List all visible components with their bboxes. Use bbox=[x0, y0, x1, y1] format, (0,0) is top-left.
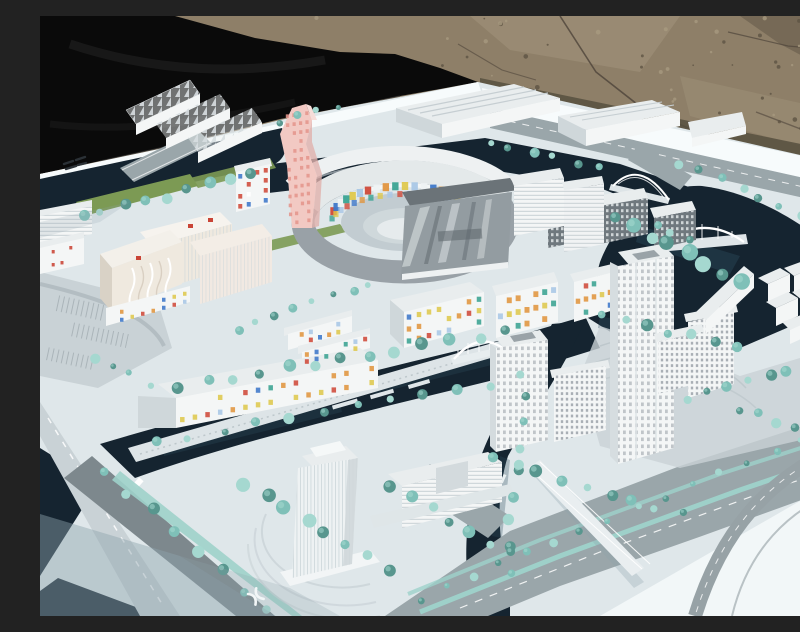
facade-dot bbox=[427, 333, 432, 338]
tree bbox=[695, 256, 711, 272]
mosaic-tile bbox=[357, 189, 363, 197]
tree-highlight bbox=[665, 331, 669, 335]
tree bbox=[650, 505, 657, 512]
tree-highlight bbox=[628, 220, 635, 227]
gravel-speckle bbox=[641, 54, 644, 57]
facade-dot bbox=[243, 405, 248, 410]
tree bbox=[121, 490, 130, 499]
tree bbox=[715, 468, 722, 475]
tree-highlight bbox=[351, 288, 355, 292]
facade-dot bbox=[498, 313, 503, 319]
tree bbox=[514, 460, 524, 470]
tree-highlight bbox=[599, 312, 602, 315]
facade-dot bbox=[592, 294, 597, 299]
tree bbox=[184, 435, 191, 442]
checker-building bbox=[234, 158, 272, 212]
tree bbox=[252, 319, 258, 325]
facade-dot bbox=[238, 204, 242, 209]
facade-dot bbox=[309, 338, 313, 343]
tree-highlight bbox=[150, 504, 155, 509]
facade-dot bbox=[256, 402, 261, 407]
tree-highlight bbox=[356, 402, 359, 405]
tree-highlight bbox=[464, 527, 470, 533]
facade-dot bbox=[218, 395, 223, 400]
gravel-speckle bbox=[692, 64, 694, 66]
tree-highlight bbox=[611, 213, 616, 218]
tree bbox=[584, 484, 592, 492]
tree-highlight bbox=[444, 334, 450, 340]
facade-dot bbox=[247, 182, 251, 187]
facade-dot bbox=[162, 306, 166, 310]
mosaic-tile bbox=[349, 192, 355, 200]
gravel-speckle bbox=[446, 37, 449, 40]
facade-dot bbox=[231, 407, 236, 412]
gravel-speckle bbox=[793, 117, 798, 122]
facade-dot bbox=[264, 178, 268, 183]
tree bbox=[674, 160, 683, 169]
mosaic-tile bbox=[387, 192, 392, 198]
gravel-speckle bbox=[718, 111, 721, 114]
facade-dot bbox=[264, 198, 268, 203]
tree-highlight bbox=[687, 237, 690, 240]
facade-dot bbox=[131, 315, 135, 319]
tree bbox=[516, 371, 524, 379]
facade-dot bbox=[294, 395, 299, 400]
tree-highlight bbox=[256, 371, 260, 375]
facade-dot bbox=[301, 193, 304, 197]
gravel-speckle bbox=[731, 64, 733, 66]
tree-highlight bbox=[723, 383, 728, 388]
gravel-speckle bbox=[666, 67, 670, 71]
facade-dot bbox=[247, 192, 251, 197]
facade-dot bbox=[307, 218, 310, 222]
facade-dot bbox=[300, 332, 304, 337]
tree-highlight bbox=[745, 461, 748, 464]
tree-highlight bbox=[418, 390, 423, 395]
tree-highlight bbox=[737, 408, 740, 411]
tree-highlight bbox=[663, 496, 666, 499]
facade-dot bbox=[576, 299, 581, 304]
facade-dot bbox=[542, 316, 547, 322]
facade-dot bbox=[307, 201, 310, 205]
facade-dot bbox=[120, 318, 124, 322]
tree-highlight bbox=[236, 327, 240, 331]
tree-highlight bbox=[342, 541, 346, 545]
tree bbox=[236, 478, 250, 492]
tree-highlight bbox=[681, 510, 684, 513]
tree bbox=[310, 361, 320, 371]
gravel-speckle bbox=[763, 16, 767, 20]
tree bbox=[90, 354, 100, 364]
gravel-speckle bbox=[694, 20, 697, 23]
tree-highlight bbox=[336, 354, 341, 359]
gravel-speckle bbox=[523, 54, 528, 59]
facade-dot bbox=[592, 281, 597, 286]
tree bbox=[486, 541, 494, 549]
tree-highlight bbox=[509, 570, 512, 573]
facade-dot bbox=[467, 311, 472, 316]
tree-highlight bbox=[453, 385, 458, 390]
facade-dot bbox=[407, 338, 412, 343]
tree-highlight bbox=[597, 164, 600, 167]
mosaic-tile bbox=[338, 207, 343, 213]
tree-highlight bbox=[718, 270, 723, 275]
facade-dot bbox=[288, 195, 291, 199]
gravel-speckle bbox=[547, 44, 549, 46]
tree-highlight bbox=[126, 370, 129, 373]
tree-highlight bbox=[655, 222, 658, 225]
gravel-speckle bbox=[484, 39, 488, 43]
facade-dot bbox=[264, 168, 268, 173]
facade-dot bbox=[533, 305, 538, 311]
tree-highlight bbox=[366, 353, 371, 358]
tree-highlight bbox=[605, 519, 608, 522]
tree-highlight bbox=[264, 490, 270, 496]
facade-dot bbox=[294, 185, 297, 189]
facade-dot bbox=[152, 309, 156, 313]
facade-dot bbox=[294, 158, 297, 162]
gravel-speckle bbox=[673, 97, 676, 100]
tree-highlight bbox=[733, 343, 738, 348]
tree bbox=[503, 514, 514, 525]
facade-dot bbox=[516, 309, 521, 315]
tree bbox=[363, 550, 373, 560]
gravel-speckle bbox=[314, 16, 318, 20]
tree-highlight bbox=[719, 174, 723, 178]
facade-dot bbox=[307, 192, 310, 196]
tree bbox=[740, 185, 748, 193]
facade-dot bbox=[293, 122, 296, 126]
facade-dot bbox=[407, 314, 412, 319]
gravel-speckle bbox=[777, 65, 781, 69]
mosaic-tile bbox=[343, 195, 349, 203]
tree-highlight bbox=[101, 468, 105, 472]
facade-dot bbox=[318, 335, 322, 340]
tree-highlight bbox=[496, 560, 499, 563]
tree bbox=[365, 282, 371, 288]
gravel-speckle bbox=[466, 56, 469, 59]
tree-highlight bbox=[736, 275, 743, 282]
gravel-speckle bbox=[714, 30, 718, 34]
tree-highlight bbox=[331, 292, 334, 295]
tree-highlight bbox=[691, 482, 694, 485]
gravel-speckle bbox=[671, 100, 674, 103]
facade-dot bbox=[300, 148, 303, 152]
tree-highlight bbox=[289, 305, 293, 309]
facade-dot bbox=[600, 292, 605, 297]
tree bbox=[162, 193, 173, 204]
tree-highlight bbox=[223, 429, 226, 432]
facade-dot bbox=[324, 354, 328, 359]
gravel-speckle bbox=[791, 64, 793, 66]
mosaic-tile bbox=[352, 200, 357, 206]
facade-dot bbox=[305, 359, 309, 364]
mosaic-tile bbox=[360, 197, 365, 203]
mosaic-tile bbox=[365, 187, 371, 195]
gravel-speckle bbox=[761, 97, 764, 100]
facade-dot bbox=[507, 297, 512, 303]
facade-dot bbox=[238, 174, 242, 179]
tree bbox=[622, 316, 630, 324]
facade-dot bbox=[417, 312, 422, 317]
facade-dot bbox=[288, 168, 291, 172]
facade-dot bbox=[507, 311, 512, 317]
facade-dot bbox=[299, 130, 302, 134]
tree bbox=[192, 546, 204, 558]
facade-dot bbox=[332, 387, 337, 392]
facade-dot bbox=[437, 330, 442, 335]
facade-dot bbox=[264, 188, 268, 193]
facade-dot bbox=[205, 412, 210, 417]
facade-dot bbox=[363, 337, 367, 342]
facade-dot bbox=[332, 373, 337, 378]
facade-dot bbox=[162, 298, 166, 302]
tree-highlight bbox=[271, 313, 275, 317]
mosaic-tile bbox=[392, 182, 398, 190]
tree-highlight bbox=[111, 364, 114, 367]
tree-highlight bbox=[170, 527, 175, 532]
facade-dot bbox=[268, 400, 273, 405]
facade-dot bbox=[584, 310, 589, 315]
facade-dot bbox=[369, 380, 374, 385]
tree-highlight bbox=[531, 466, 537, 472]
gravel-speckle bbox=[772, 114, 775, 117]
facade-dot bbox=[294, 380, 299, 385]
facade-dot bbox=[52, 263, 55, 266]
facade-dot bbox=[299, 121, 302, 125]
facade-dot bbox=[542, 289, 547, 295]
tree-highlight bbox=[319, 528, 324, 533]
mosaic-tile bbox=[378, 193, 383, 199]
tree-highlight bbox=[142, 197, 146, 201]
tree-highlight bbox=[285, 361, 291, 367]
facade-dot bbox=[369, 366, 374, 371]
tree-highlight bbox=[507, 548, 511, 552]
gravel-speckle bbox=[441, 64, 444, 67]
tree-highlight bbox=[712, 338, 717, 343]
facade-dot bbox=[477, 319, 482, 324]
facade-dot bbox=[183, 292, 187, 296]
tree bbox=[228, 375, 238, 385]
tree bbox=[549, 539, 558, 548]
mosaic-tile bbox=[333, 211, 338, 217]
facade-dot bbox=[315, 350, 319, 355]
tree-highlight bbox=[704, 389, 707, 392]
facade-dot bbox=[295, 194, 298, 198]
photo-architectural-model bbox=[40, 16, 800, 616]
tree-highlight bbox=[755, 195, 759, 199]
tree-highlight bbox=[173, 383, 178, 388]
facade-dot bbox=[183, 300, 187, 304]
facade-dot bbox=[457, 313, 462, 318]
tree-highlight bbox=[385, 566, 390, 571]
tree bbox=[488, 140, 494, 146]
facade-dot bbox=[309, 330, 313, 335]
tree-highlight bbox=[776, 204, 779, 207]
gravel-speckle bbox=[778, 120, 781, 123]
tree-highlight bbox=[627, 496, 632, 501]
facade-dot bbox=[293, 131, 296, 135]
mosaic-tile bbox=[383, 183, 389, 191]
gravel-speckle bbox=[491, 75, 493, 77]
facade-dot bbox=[180, 417, 185, 422]
tree-highlight bbox=[321, 409, 325, 413]
tree-highlight bbox=[695, 166, 699, 170]
tree bbox=[515, 445, 524, 454]
facade-dot bbox=[295, 212, 298, 216]
facade-dot bbox=[525, 307, 530, 313]
tree-highlight bbox=[446, 519, 450, 523]
tree-highlight bbox=[252, 418, 256, 422]
facade-dot bbox=[52, 250, 55, 253]
gravel-speckle bbox=[640, 66, 643, 69]
facade-dot bbox=[447, 328, 452, 333]
facade-dot bbox=[256, 388, 261, 393]
facade-dot bbox=[584, 283, 589, 288]
tree-highlight bbox=[278, 502, 284, 508]
tree bbox=[225, 173, 236, 184]
gravel-speckle bbox=[758, 33, 762, 37]
tree bbox=[744, 377, 751, 384]
facade-dot bbox=[289, 204, 292, 208]
tree-highlight bbox=[558, 477, 563, 482]
gravel-speckle bbox=[770, 93, 772, 95]
tree-highlight bbox=[775, 449, 778, 452]
tree bbox=[549, 152, 555, 158]
tree-highlight bbox=[506, 542, 511, 547]
facade-dot bbox=[353, 346, 357, 351]
tree-highlight bbox=[792, 424, 796, 428]
tree bbox=[487, 383, 495, 391]
facade-dot bbox=[193, 415, 198, 420]
gravel-speckle bbox=[596, 30, 601, 35]
facade-dot bbox=[286, 123, 289, 127]
gravel-speckle bbox=[505, 20, 508, 23]
tree bbox=[636, 503, 642, 509]
facade-dot bbox=[306, 165, 309, 169]
tree bbox=[470, 573, 479, 582]
gravel-speckle bbox=[659, 70, 663, 74]
facade-dot bbox=[305, 111, 308, 115]
facade-dot bbox=[173, 303, 177, 307]
facade-dot bbox=[69, 246, 72, 249]
facade-dot bbox=[551, 301, 556, 307]
facade-dot bbox=[307, 183, 310, 187]
gravel-speckle bbox=[535, 85, 540, 90]
facade-dot bbox=[306, 129, 309, 133]
tree bbox=[771, 418, 781, 428]
tree bbox=[684, 396, 692, 404]
facade-dot bbox=[268, 385, 273, 390]
mosaic-tile bbox=[402, 182, 408, 190]
facade-dot bbox=[551, 287, 556, 293]
facade-dot bbox=[447, 316, 452, 321]
facade-dot bbox=[584, 296, 589, 301]
facade-dot bbox=[319, 390, 324, 395]
tree bbox=[313, 107, 319, 113]
tree-highlight bbox=[523, 393, 527, 397]
tree-highlight bbox=[153, 437, 157, 441]
facade-dot bbox=[477, 297, 482, 302]
tree-highlight bbox=[489, 453, 494, 458]
tree-highlight bbox=[643, 320, 649, 326]
gravel-speckle bbox=[774, 60, 777, 63]
facade-dot bbox=[306, 156, 309, 160]
facade-dot bbox=[306, 174, 309, 178]
tree-highlight bbox=[445, 584, 448, 587]
gravel-speckle bbox=[710, 51, 712, 53]
facade-dot bbox=[238, 194, 242, 199]
facade-dot bbox=[247, 202, 251, 207]
tree bbox=[476, 333, 486, 343]
tree-highlight bbox=[575, 161, 579, 165]
tree bbox=[309, 298, 315, 304]
facade-dot bbox=[516, 295, 521, 301]
tree-highlight bbox=[294, 112, 298, 116]
tree bbox=[148, 383, 154, 389]
facade-dot bbox=[141, 312, 145, 316]
facade-dot bbox=[407, 326, 412, 331]
tree-highlight bbox=[206, 376, 211, 381]
facade-dot bbox=[336, 322, 340, 327]
facade-dot bbox=[300, 157, 303, 161]
tree-highlight bbox=[505, 145, 508, 148]
facade-dot bbox=[300, 184, 303, 188]
tree bbox=[303, 514, 317, 528]
tree bbox=[387, 395, 394, 402]
facade-dot bbox=[315, 357, 319, 362]
gravel-speckle bbox=[483, 18, 485, 20]
tree-highlight bbox=[576, 528, 579, 531]
facade-dot bbox=[295, 220, 298, 224]
facade-dot bbox=[307, 210, 310, 214]
tree-highlight bbox=[782, 367, 787, 372]
tree bbox=[666, 229, 674, 237]
tree-highlight bbox=[385, 482, 391, 488]
tree-highlight bbox=[684, 246, 691, 253]
tree-highlight bbox=[206, 178, 211, 183]
facade-dot bbox=[294, 176, 297, 180]
facade-dot bbox=[286, 114, 289, 118]
facade-dot bbox=[120, 310, 124, 314]
tree-highlight bbox=[183, 185, 187, 189]
tree-highlight bbox=[246, 169, 251, 174]
gravel-speckle bbox=[498, 21, 502, 25]
facade-dot bbox=[289, 213, 292, 217]
facade-dot bbox=[293, 149, 296, 153]
tree-highlight bbox=[336, 105, 338, 107]
facade-dot bbox=[477, 308, 482, 313]
facade-dot bbox=[516, 323, 521, 329]
facade-dot bbox=[344, 385, 349, 390]
facade-dot bbox=[533, 291, 538, 297]
tree bbox=[429, 502, 438, 511]
facade-dot bbox=[243, 390, 248, 395]
facade-dot bbox=[417, 324, 422, 329]
mosaic-tile bbox=[368, 195, 373, 201]
tree-highlight bbox=[509, 493, 514, 498]
facade-dot bbox=[327, 332, 331, 337]
tree-highlight bbox=[524, 548, 528, 552]
facade-dot bbox=[288, 177, 291, 181]
facade-dot bbox=[61, 261, 64, 264]
facade-dot bbox=[525, 321, 530, 327]
facade-dot bbox=[542, 303, 547, 309]
facade-dot bbox=[336, 330, 340, 335]
facade-dot bbox=[353, 339, 357, 344]
facade-dot bbox=[344, 371, 349, 376]
facade-dot bbox=[305, 120, 308, 124]
